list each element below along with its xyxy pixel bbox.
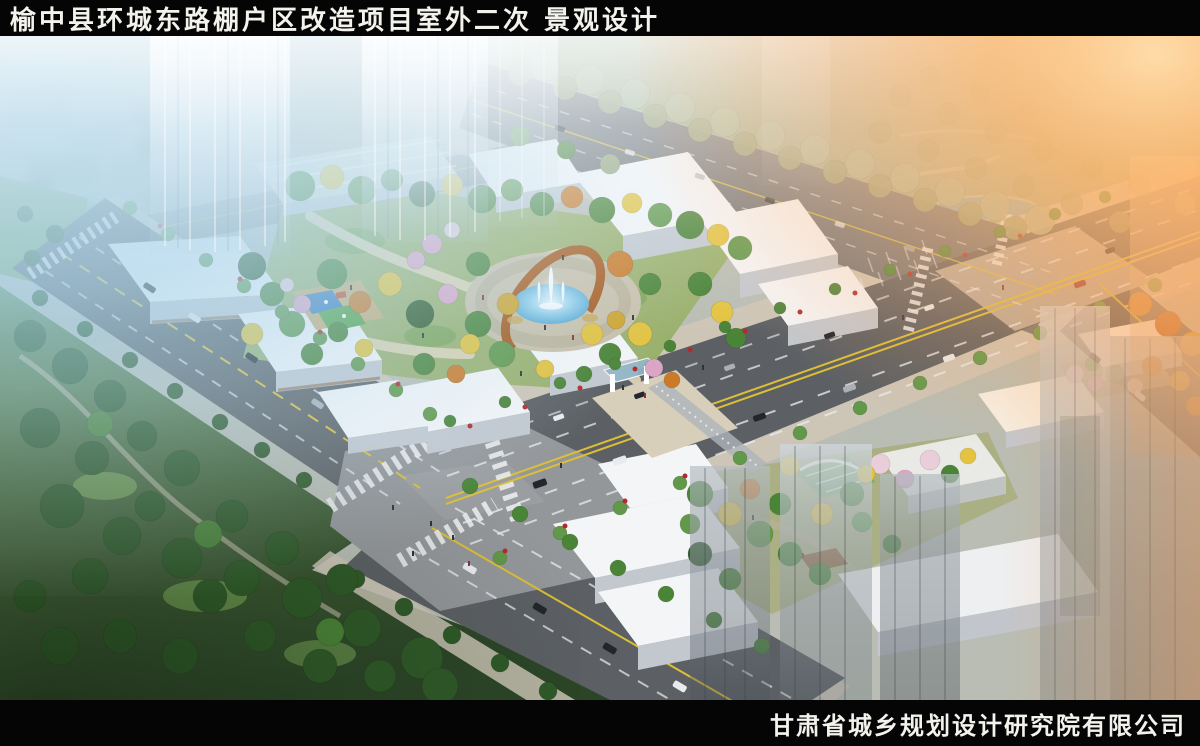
orange-glow-overlay [640, 36, 1200, 476]
project-title: 榆中县环城东路棚户区改造项目室外二次 景观设计 [0, 0, 660, 37]
rendering-frame: 榆中县环城东路棚户区改造项目室外二次 景观设计 甘肃省城乡规划设计研究院有限公司 [0, 0, 1200, 746]
aerial-render [0, 36, 1200, 700]
credit-bar: 甘肃省城乡规划设计研究院有限公司 [0, 700, 1200, 746]
vignette-overlay [0, 386, 580, 700]
design-institute-credit: 甘肃省城乡规划设计研究院有限公司 [770, 706, 1200, 741]
title-bar: 榆中县环城东路棚户区改造项目室外二次 景观设计 [0, 0, 1200, 36]
